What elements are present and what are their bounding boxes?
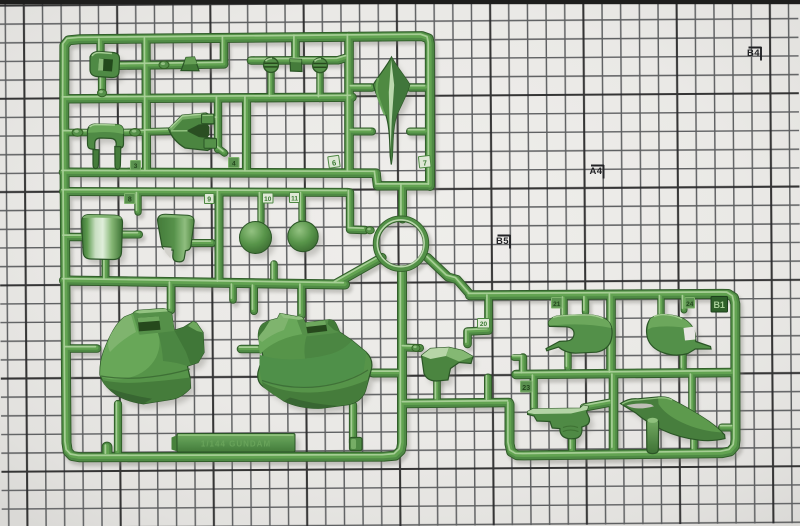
svg-text:B5: B5: [496, 236, 509, 247]
svg-text:B4: B4: [747, 48, 760, 59]
svg-text:B1: B1: [713, 300, 725, 310]
svg-text:4: 4: [232, 160, 236, 167]
svg-text:9: 9: [207, 197, 211, 204]
svg-text:20: 20: [480, 321, 488, 328]
svg-text:3: 3: [134, 163, 138, 170]
svg-text:10: 10: [264, 196, 272, 203]
svg-text:A4: A4: [590, 166, 603, 177]
svg-text:23: 23: [522, 385, 530, 392]
svg-text:11: 11: [291, 196, 298, 203]
svg-text:8: 8: [128, 196, 132, 203]
svg-text:24: 24: [686, 301, 694, 308]
svg-text:21: 21: [553, 301, 561, 308]
svg-text:1/144 GUNDAM: 1/144 GUNDAM: [201, 440, 271, 449]
